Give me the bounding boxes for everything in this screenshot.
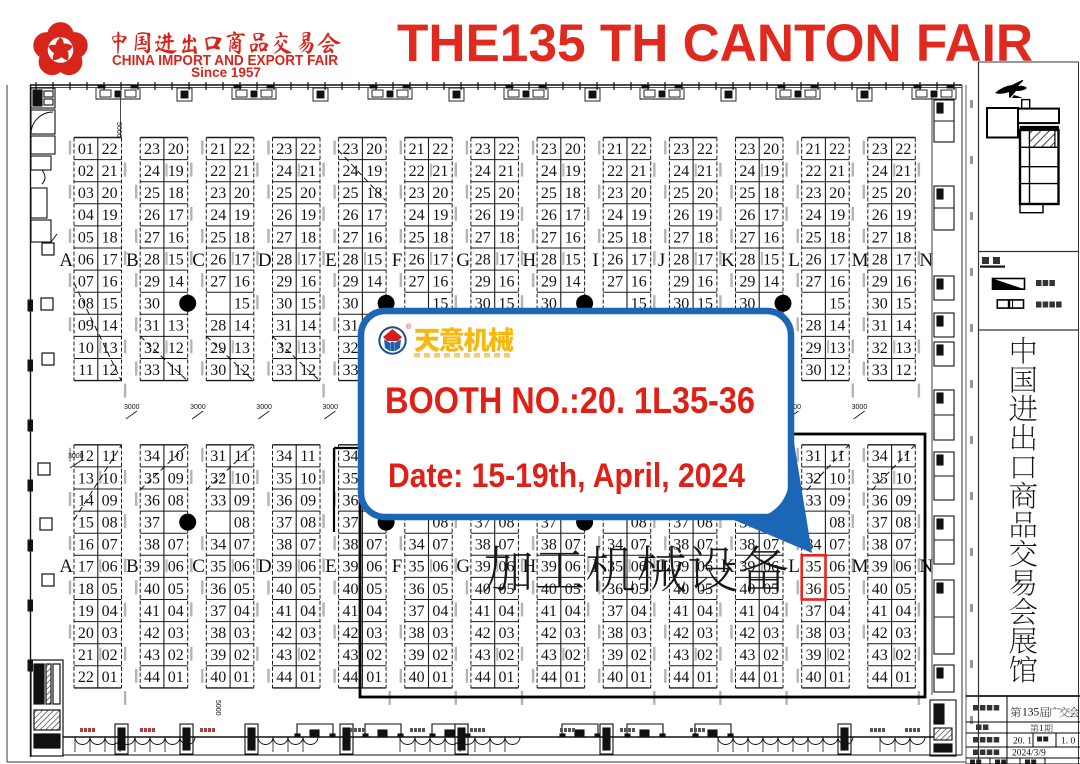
svg-text:25: 25 [475,185,491,202]
svg-text:40: 40 [806,669,822,686]
svg-text:26: 26 [739,207,755,224]
svg-text:43: 43 [872,647,888,664]
svg-text:02: 02 [102,647,118,664]
svg-text:06: 06 [78,251,94,268]
svg-text:41: 41 [739,603,755,620]
svg-text:40: 40 [276,581,292,598]
svg-text:27: 27 [276,229,292,246]
svg-text:13: 13 [102,340,118,357]
svg-text:19: 19 [432,207,448,224]
svg-text:5000: 5000 [115,122,122,138]
svg-text:27: 27 [475,229,491,246]
svg-text:02: 02 [499,647,515,664]
svg-text:36: 36 [806,581,822,598]
svg-text:40: 40 [144,581,160,598]
svg-text:28: 28 [739,251,755,268]
svg-text:05: 05 [366,581,382,598]
svg-text:36: 36 [144,492,160,509]
svg-text:THE135 TH CANTON FAIR: THE135 TH CANTON FAIR [397,14,1033,73]
svg-text:25: 25 [276,185,292,202]
svg-text:22: 22 [78,669,94,686]
svg-text:06: 06 [102,559,118,576]
svg-text:26: 26 [673,207,689,224]
svg-text:19: 19 [763,163,779,180]
svg-text:22: 22 [607,163,623,180]
svg-text:19: 19 [78,603,94,620]
svg-text:28: 28 [872,251,888,268]
svg-text:41: 41 [276,603,292,620]
svg-text:35: 35 [409,559,425,576]
svg-text:F: F [392,250,403,271]
svg-text:39: 39 [872,559,888,576]
svg-text:11: 11 [78,362,93,379]
svg-text:20: 20 [102,185,118,202]
svg-text:15: 15 [168,251,184,268]
svg-text:08: 08 [829,514,845,531]
svg-text:10: 10 [829,470,845,487]
svg-text:25: 25 [541,185,557,202]
svg-text:Date: 15-19th, April, 2024: Date: 15-19th, April, 2024 [388,457,745,495]
svg-text:21: 21 [631,163,647,180]
svg-text:43: 43 [739,647,755,664]
svg-text:18: 18 [234,229,250,246]
svg-text:16: 16 [300,274,316,291]
svg-text:20: 20 [697,185,713,202]
svg-text:03: 03 [234,625,250,642]
svg-text:20: 20 [895,185,911,202]
svg-text:18: 18 [763,185,779,202]
svg-text:32: 32 [144,340,160,357]
svg-text:B: B [126,250,139,271]
svg-text:04: 04 [300,603,316,620]
svg-text:43: 43 [673,647,689,664]
svg-text:13: 13 [234,340,250,357]
svg-text:32: 32 [343,340,359,357]
svg-text:04: 04 [168,603,184,620]
svg-text:20: 20 [168,141,184,158]
svg-text:19: 19 [499,207,515,224]
svg-text:18: 18 [300,229,316,246]
svg-text:20: 20 [565,141,581,158]
svg-text:03: 03 [432,625,448,642]
svg-text:07: 07 [829,537,845,554]
svg-text:34: 34 [276,448,292,465]
svg-text:38: 38 [475,537,491,554]
svg-text:10: 10 [102,470,118,487]
svg-text:07: 07 [895,537,911,554]
svg-text:21: 21 [607,141,623,158]
svg-text:08: 08 [300,514,316,531]
svg-text:04: 04 [763,603,779,620]
svg-text:08: 08 [78,296,94,313]
svg-text:20: 20 [432,185,448,202]
svg-text:40: 40 [541,581,557,598]
svg-text:16: 16 [631,274,647,291]
svg-text:K: K [721,250,735,271]
svg-text:28: 28 [210,318,226,335]
svg-text:19: 19 [631,207,647,224]
svg-text:05: 05 [102,581,118,598]
svg-text:01: 01 [432,669,448,686]
svg-text:3000: 3000 [190,404,206,411]
svg-text:17: 17 [631,251,647,268]
svg-text:26: 26 [276,207,292,224]
svg-text:44: 44 [276,669,292,686]
svg-text:21: 21 [829,163,845,180]
svg-text:25: 25 [806,229,822,246]
svg-text:20: 20 [78,625,94,642]
svg-text:23: 23 [607,185,623,202]
svg-text:135: 135 [1022,707,1040,719]
svg-text:09: 09 [102,492,118,509]
svg-text:37: 37 [343,514,359,531]
svg-text:39: 39 [343,559,359,576]
svg-text:03: 03 [168,625,184,642]
svg-text:39: 39 [541,559,557,576]
svg-text:18: 18 [499,229,515,246]
svg-text:02: 02 [829,647,845,664]
svg-text:06: 06 [895,559,911,576]
svg-text:40: 40 [607,669,623,686]
svg-text:17: 17 [78,559,94,576]
svg-text:31: 31 [144,318,160,335]
svg-text:A: A [59,250,73,271]
svg-text:13: 13 [300,340,316,357]
svg-text:02: 02 [631,647,647,664]
svg-text:43: 43 [475,647,491,664]
svg-text:04: 04 [366,603,382,620]
svg-text:04: 04 [631,603,647,620]
svg-text:27: 27 [210,274,226,291]
svg-text:09: 09 [829,492,845,509]
svg-text:03: 03 [565,625,581,642]
svg-text:19: 19 [565,163,581,180]
svg-text:11: 11 [830,448,845,465]
svg-text:15: 15 [234,296,250,313]
svg-text:2024/3/9: 2024/3/9 [1012,749,1046,759]
svg-text:26: 26 [607,251,623,268]
svg-text:23: 23 [806,185,822,202]
svg-text:01: 01 [78,141,94,158]
svg-text:38: 38 [210,625,226,642]
svg-text:36: 36 [276,492,292,509]
svg-text:05: 05 [234,581,250,598]
svg-text:18: 18 [102,229,118,246]
svg-text:39: 39 [210,647,226,664]
svg-text:17: 17 [168,207,184,224]
svg-text:14: 14 [829,318,845,335]
svg-text:25: 25 [739,185,755,202]
svg-text:10: 10 [234,470,250,487]
svg-text:34: 34 [872,448,888,465]
svg-text:20: 20 [763,141,779,158]
svg-text:12: 12 [102,362,118,379]
svg-text:26: 26 [541,207,557,224]
svg-text:22: 22 [829,141,845,158]
svg-text:06: 06 [565,559,581,576]
svg-text:35: 35 [806,559,822,576]
svg-text:24: 24 [343,163,359,180]
svg-text:05: 05 [78,229,94,246]
svg-text:17: 17 [763,207,779,224]
svg-text:09: 09 [895,492,911,509]
svg-text:01: 01 [366,669,382,686]
svg-text:33: 33 [210,492,226,509]
svg-text:39: 39 [276,559,292,576]
svg-text:17: 17 [432,251,448,268]
svg-text:35: 35 [607,559,623,576]
svg-text:Since 1957: Since 1957 [191,65,261,80]
svg-text:13: 13 [78,470,94,487]
svg-text:19: 19 [102,207,118,224]
svg-text:18: 18 [565,185,581,202]
svg-text:07: 07 [168,537,184,554]
svg-text:38: 38 [409,625,425,642]
svg-text:44: 44 [144,669,160,686]
svg-text:01: 01 [697,669,713,686]
svg-text:29: 29 [343,274,359,291]
svg-text:07: 07 [234,537,250,554]
svg-text:16: 16 [697,274,713,291]
svg-text:23: 23 [343,141,359,158]
svg-text:39: 39 [409,647,425,664]
svg-text:29: 29 [210,340,226,357]
svg-text:44: 44 [475,669,491,686]
svg-text:19: 19 [168,163,184,180]
svg-text:14: 14 [234,318,250,335]
svg-text:36: 36 [607,581,623,598]
svg-text:22: 22 [895,141,911,158]
svg-text:01: 01 [829,669,845,686]
svg-text:07: 07 [300,537,316,554]
svg-text:03: 03 [102,625,118,642]
svg-text:27: 27 [806,274,822,291]
svg-text:06: 06 [829,559,845,576]
svg-text:18: 18 [78,581,94,598]
svg-text:12: 12 [829,362,845,379]
svg-text:19: 19 [895,207,911,224]
svg-text:1. 0: 1. 0 [1061,737,1076,747]
svg-text:17: 17 [499,251,515,268]
svg-text:28: 28 [343,251,359,268]
svg-text:26: 26 [806,251,822,268]
svg-text:22: 22 [210,163,226,180]
svg-text:30: 30 [144,296,160,313]
svg-text:04: 04 [895,603,911,620]
svg-text:24: 24 [607,207,623,224]
svg-text:21: 21 [409,141,425,158]
svg-text:28: 28 [144,251,160,268]
svg-text:23: 23 [739,141,755,158]
svg-text:30: 30 [343,296,359,313]
svg-text:02: 02 [697,647,713,664]
svg-text:04: 04 [102,603,118,620]
svg-text:C: C [192,250,205,271]
svg-text:18: 18 [168,185,184,202]
svg-text:L: L [788,556,800,577]
svg-text:25: 25 [673,185,689,202]
svg-text:18: 18 [432,229,448,246]
svg-text:33: 33 [806,492,822,509]
svg-text:39: 39 [673,559,689,576]
svg-text:03: 03 [763,625,779,642]
svg-text:26: 26 [409,251,425,268]
svg-text:24: 24 [806,207,822,224]
svg-text:22: 22 [697,141,713,158]
svg-text:36: 36 [409,581,425,598]
svg-text:01: 01 [499,669,515,686]
svg-text:06: 06 [366,559,382,576]
svg-text:01: 01 [168,669,184,686]
svg-text:37: 37 [210,603,226,620]
svg-text:38: 38 [541,537,557,554]
svg-text:23: 23 [475,141,491,158]
svg-text:42: 42 [475,625,491,642]
svg-text:38: 38 [276,537,292,554]
svg-text:02: 02 [234,647,250,664]
svg-text:41: 41 [872,603,888,620]
svg-text:42: 42 [673,625,689,642]
svg-text:38: 38 [607,625,623,642]
svg-text:15: 15 [895,296,911,313]
svg-text:05: 05 [300,581,316,598]
svg-text:L: L [788,250,800,271]
svg-text:17: 17 [300,251,316,268]
svg-text:04: 04 [829,603,845,620]
svg-text:1: 1 [1039,723,1044,733]
svg-text:09: 09 [168,470,184,487]
svg-text:19: 19 [829,207,845,224]
svg-text:09: 09 [234,492,250,509]
svg-text:21: 21 [234,163,250,180]
svg-text:43: 43 [144,647,160,664]
svg-text:39: 39 [607,647,623,664]
svg-text:22: 22 [409,163,425,180]
svg-text:06: 06 [432,559,448,576]
svg-text:07: 07 [631,537,647,554]
svg-text:38: 38 [872,537,888,554]
svg-text:21: 21 [300,163,316,180]
svg-text:23: 23 [144,141,160,158]
svg-text:21: 21 [210,141,226,158]
svg-text:22: 22 [499,141,515,158]
svg-text:24: 24 [872,163,888,180]
svg-text:23: 23 [673,141,689,158]
svg-text:16: 16 [763,229,779,246]
svg-text:21: 21 [78,647,94,664]
svg-text:04: 04 [432,603,448,620]
svg-text:02: 02 [366,647,382,664]
svg-text:04: 04 [234,603,250,620]
svg-text:31: 31 [806,448,822,465]
svg-text:25: 25 [343,185,359,202]
svg-text:17: 17 [102,251,118,268]
svg-text:05: 05 [565,581,581,598]
svg-text:21: 21 [102,163,118,180]
svg-text:B: B [126,556,139,577]
svg-text:15: 15 [565,251,581,268]
svg-text:03: 03 [366,625,382,642]
svg-text:05: 05 [895,581,911,598]
svg-text:G: G [456,556,470,577]
svg-text:31: 31 [343,318,359,335]
svg-text:16: 16 [432,274,448,291]
svg-text:29: 29 [673,274,689,291]
svg-text:21: 21 [895,163,911,180]
svg-text:16: 16 [102,274,118,291]
svg-text:41: 41 [144,603,160,620]
svg-text:H: H [523,250,537,271]
svg-text:16: 16 [565,229,581,246]
svg-text:12: 12 [168,340,184,357]
svg-text:04: 04 [78,207,94,224]
svg-text:08: 08 [168,492,184,509]
svg-text:06: 06 [300,559,316,576]
svg-text:01: 01 [234,669,250,686]
svg-text:06: 06 [234,559,250,576]
svg-text:04: 04 [565,603,581,620]
svg-text:02: 02 [78,163,94,180]
svg-text:24: 24 [409,207,425,224]
svg-text:03: 03 [895,625,911,642]
svg-text:15: 15 [102,296,118,313]
svg-text:44: 44 [739,669,755,686]
svg-text:22: 22 [432,141,448,158]
svg-text:23: 23 [409,185,425,202]
svg-text:02: 02 [895,647,911,664]
svg-text:J: J [658,250,665,271]
svg-text:12: 12 [895,362,911,379]
svg-text:28: 28 [541,251,557,268]
svg-text:07: 07 [565,537,581,554]
svg-text:10: 10 [895,470,911,487]
svg-text:17: 17 [697,251,713,268]
svg-text:BOOTH NO.:20. 1L35-36: BOOTH NO.:20. 1L35-36 [385,380,755,421]
svg-text:C: C [192,556,205,577]
svg-text:3000: 3000 [256,404,272,411]
svg-text:14: 14 [763,274,779,291]
svg-text:38: 38 [806,625,822,642]
svg-text:42: 42 [739,625,755,642]
svg-text:39: 39 [144,559,160,576]
svg-text:18: 18 [631,229,647,246]
svg-text:42: 42 [541,625,557,642]
svg-text:18: 18 [829,229,845,246]
svg-text:29: 29 [872,274,888,291]
svg-text:3000: 3000 [68,453,84,460]
svg-text:20: 20 [366,141,382,158]
svg-text:34: 34 [144,448,160,465]
svg-text:27: 27 [541,229,557,246]
svg-text:27: 27 [673,229,689,246]
svg-text:28: 28 [276,251,292,268]
svg-text:27: 27 [739,229,755,246]
svg-text:20: 20 [499,185,515,202]
svg-text:29: 29 [475,274,491,291]
svg-text:20. 1: 20. 1 [1013,737,1032,747]
svg-text:36: 36 [210,581,226,598]
svg-text:16: 16 [78,537,94,554]
svg-text:25: 25 [872,185,888,202]
svg-text:13: 13 [829,340,845,357]
svg-text:17: 17 [366,207,382,224]
svg-text:21: 21 [697,163,713,180]
svg-text:34: 34 [607,537,623,554]
svg-text:35: 35 [210,559,226,576]
svg-text:28: 28 [475,251,491,268]
svg-text:19: 19 [300,207,316,224]
svg-text:13: 13 [895,340,911,357]
